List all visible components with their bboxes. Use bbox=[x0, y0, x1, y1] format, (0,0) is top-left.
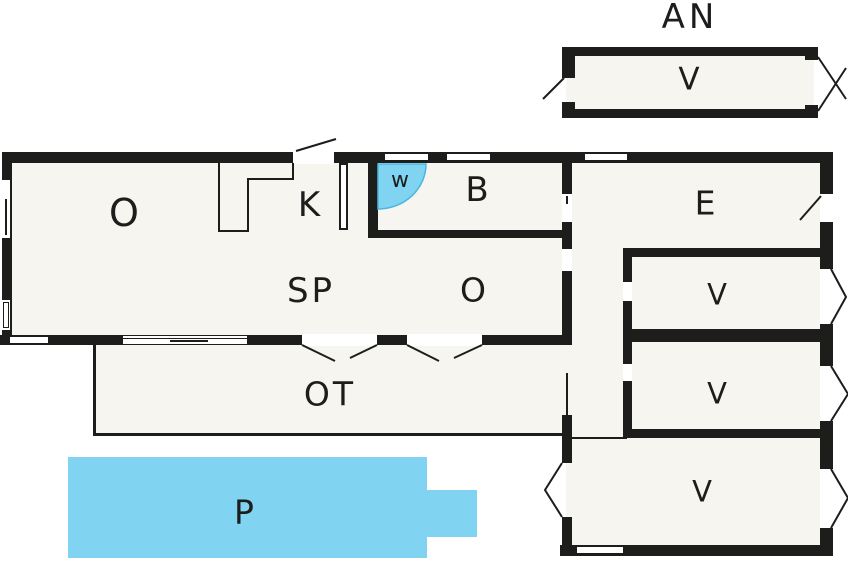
door-jamb-line bbox=[566, 196, 568, 204]
bathroom-label: B bbox=[465, 173, 490, 207]
wall-segment bbox=[562, 517, 572, 555]
window-frame bbox=[3, 302, 9, 328]
wall-segment bbox=[623, 342, 632, 438]
wall-segment bbox=[623, 329, 833, 342]
window-slot bbox=[585, 154, 627, 160]
thin-wall-line bbox=[218, 163, 220, 232]
thin-wall-line bbox=[247, 178, 294, 180]
kitchen-label: K bbox=[298, 188, 322, 222]
window-slot bbox=[10, 337, 48, 343]
door-opening bbox=[562, 249, 572, 271]
wall-segment bbox=[805, 47, 818, 60]
room-o-left-label: O bbox=[109, 194, 141, 232]
window-glass-line bbox=[123, 338, 247, 339]
window-glass-line bbox=[5, 199, 7, 235]
thin-wall-line bbox=[218, 230, 249, 232]
wall-segment bbox=[562, 47, 575, 78]
door-opening bbox=[820, 194, 833, 222]
entrance-label: E bbox=[695, 187, 718, 220]
pool-label: P bbox=[234, 496, 256, 529]
window-slot bbox=[577, 547, 623, 553]
window-slot bbox=[447, 154, 490, 160]
wc-label: w bbox=[391, 170, 411, 192]
pool-steps bbox=[427, 490, 477, 537]
wall-segment bbox=[562, 109, 818, 118]
door-opening bbox=[407, 334, 482, 346]
wall-segment bbox=[562, 47, 818, 56]
wall-segment bbox=[805, 105, 818, 118]
window-slot bbox=[385, 154, 428, 160]
window-glass-line bbox=[170, 340, 208, 342]
door-opening bbox=[820, 469, 833, 528]
wall-segment bbox=[368, 163, 378, 238]
bedroom-2-label: V bbox=[707, 380, 729, 409]
door-opening bbox=[623, 364, 632, 381]
bedroom-3-label: V bbox=[692, 478, 714, 507]
annex-room-label: V bbox=[678, 65, 701, 96]
terrace-label: OT bbox=[304, 378, 356, 411]
wall-segment bbox=[562, 415, 572, 463]
door-opening bbox=[623, 282, 632, 301]
opening-line bbox=[566, 373, 568, 415]
door-opening bbox=[293, 151, 334, 164]
thin-wall-line bbox=[93, 433, 572, 436]
thin-wall-line bbox=[93, 345, 96, 435]
wall-segment bbox=[623, 248, 833, 257]
annex-title-label: AN bbox=[662, 0, 719, 34]
thin-wall-line bbox=[572, 437, 627, 439]
thin-wall-line bbox=[247, 178, 249, 232]
floor-plan: AN V O K w B E SP O V V V OT P bbox=[0, 0, 848, 565]
room-o-mid-label: O bbox=[460, 274, 488, 307]
door-opening bbox=[302, 334, 377, 346]
wall-segment bbox=[562, 102, 575, 118]
thin-wall-line bbox=[292, 163, 294, 180]
thin-wall-outline bbox=[339, 163, 348, 230]
wall-segment bbox=[0, 335, 572, 345]
door-opening bbox=[820, 269, 833, 324]
wall-segment bbox=[623, 429, 833, 438]
wall-segment bbox=[368, 230, 572, 238]
door-opening bbox=[820, 366, 833, 421]
room-sp-label: SP bbox=[287, 274, 335, 308]
bedroom-1-label: V bbox=[707, 281, 729, 310]
